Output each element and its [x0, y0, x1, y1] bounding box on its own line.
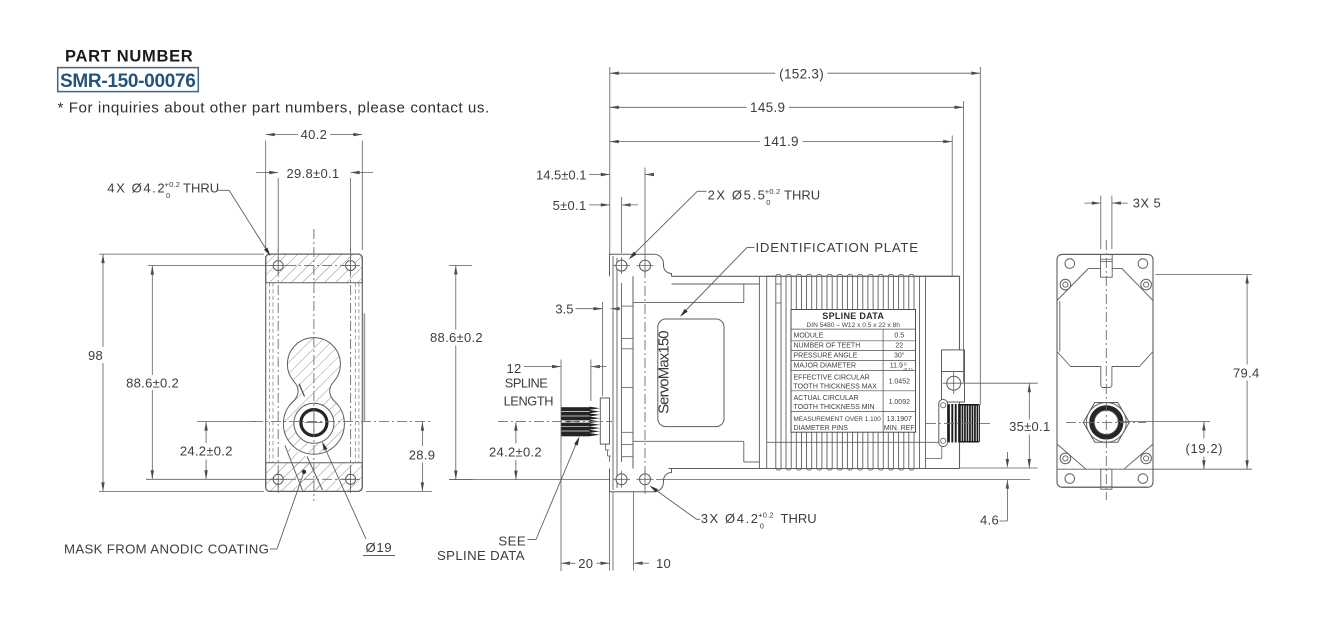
svg-text:DIN 5480 – W12 x 0.5 x 22 x 8h: DIN 5480 – W12 x 0.5 x 22 x 8h: [807, 322, 901, 329]
svg-text:Ø19: Ø19: [366, 540, 393, 555]
svg-text:(152.3): (152.3): [779, 66, 824, 81]
svg-text:ACTUAL CIRCULAR: ACTUAL CIRCULAR: [794, 395, 859, 402]
svg-text:+0.2: +0.2: [765, 187, 781, 196]
svg-text:THRU: THRU: [183, 181, 219, 196]
svg-text:TOOTH THICKNESS MAX: TOOTH THICKNESS MAX: [794, 383, 878, 390]
svg-text:SEE: SEE: [498, 534, 526, 549]
svg-text:0: 0: [766, 198, 770, 207]
svg-text:DIAMETER PINS: DIAMETER PINS: [794, 425, 849, 432]
svg-text:35±0.1: 35±0.1: [1009, 419, 1050, 434]
svg-text:3X Ø4.2: 3X Ø4.2: [701, 511, 760, 526]
svg-text:0.5: 0.5: [894, 333, 904, 340]
svg-text:1.0452: 1.0452: [889, 379, 911, 386]
svg-text:THRU: THRU: [784, 187, 820, 202]
svg-text:2X Ø5.5: 2X Ø5.5: [708, 187, 767, 202]
svg-text:4.6: 4.6: [980, 513, 999, 528]
svg-text:MIN. REF: MIN. REF: [884, 425, 915, 432]
svg-text:+0.2: +0.2: [165, 180, 181, 189]
svg-text:ServoMax150: ServoMax150: [656, 331, 673, 414]
svg-text:+0.2: +0.2: [758, 511, 774, 520]
svg-text:98: 98: [88, 348, 103, 363]
svg-text:MEASUREMENT OVER 1.100: MEASUREMENT OVER 1.100: [794, 416, 882, 423]
svg-text:88.6±0.2: 88.6±0.2: [430, 330, 483, 345]
svg-text:3.5: 3.5: [555, 301, 573, 316]
svg-text:MAJOR DIAMETER: MAJOR DIAMETER: [794, 363, 857, 370]
svg-text:28.9: 28.9: [409, 448, 436, 463]
svg-text:14.5±0.1: 14.5±0.1: [536, 167, 587, 182]
svg-text:SPLINE DATA: SPLINE DATA: [437, 548, 525, 563]
svg-text:13.1907: 13.1907: [887, 416, 912, 423]
svg-text:79.4: 79.4: [1233, 365, 1260, 380]
svg-text:10: 10: [656, 556, 671, 571]
svg-text:EFFECTIVE CIRCULAR: EFFECTIVE CIRCULAR: [794, 375, 870, 382]
svg-text:22: 22: [895, 342, 903, 349]
svg-text:11.9: 11.9: [890, 363, 903, 370]
svg-text:PART NUMBER: PART NUMBER: [65, 48, 193, 66]
svg-text:0: 0: [904, 362, 907, 367]
svg-text:0: 0: [166, 191, 170, 200]
svg-text:88.6±0.2: 88.6±0.2: [126, 375, 179, 390]
svg-text:145.9: 145.9: [750, 100, 785, 115]
svg-text:29.8±0.1: 29.8±0.1: [287, 166, 340, 181]
svg-text:1.0092: 1.0092: [889, 399, 911, 406]
svg-text:24.2±0.2: 24.2±0.2: [489, 444, 542, 459]
svg-text:5±0.1: 5±0.1: [553, 198, 587, 213]
svg-text:20: 20: [578, 556, 593, 571]
svg-text:SMR-150-00076: SMR-150-00076: [60, 71, 196, 92]
svg-text:40.2: 40.2: [301, 127, 328, 142]
svg-text:NUMBER OF TEETH: NUMBER OF TEETH: [794, 342, 861, 349]
svg-text:4X Ø4.2: 4X Ø4.2: [107, 181, 166, 196]
svg-text:LENGTH: LENGTH: [504, 394, 554, 409]
svg-text:3X 5: 3X 5: [1133, 196, 1162, 211]
svg-text:MODULE: MODULE: [794, 333, 824, 340]
svg-text:24.2±0.2: 24.2±0.2: [180, 444, 233, 459]
svg-text:* For inquiries about other pa: * For inquiries about other part numbers…: [58, 100, 490, 117]
svg-text:MASK FROM ANODIC COATING: MASK FROM ANODIC COATING: [64, 542, 269, 557]
svg-text:(19.2): (19.2): [1186, 441, 1224, 456]
svg-text:SPLINE: SPLINE: [505, 376, 548, 391]
svg-text:30°: 30°: [894, 351, 905, 359]
svg-text:IDENTIFICATION PLATE: IDENTIFICATION PLATE: [756, 240, 919, 255]
svg-text:141.9: 141.9: [764, 134, 799, 149]
svg-text:PRESSURE ANGLE: PRESSURE ANGLE: [794, 352, 858, 359]
svg-text:TOOTH THICKNESS MIN: TOOTH THICKNESS MIN: [794, 404, 875, 411]
svg-text:THRU: THRU: [781, 511, 817, 526]
svg-text:12: 12: [506, 361, 521, 376]
svg-text:SPLINE DATA: SPLINE DATA: [822, 311, 884, 321]
svg-text:-0.11: -0.11: [903, 367, 914, 372]
svg-text:0: 0: [760, 522, 764, 531]
